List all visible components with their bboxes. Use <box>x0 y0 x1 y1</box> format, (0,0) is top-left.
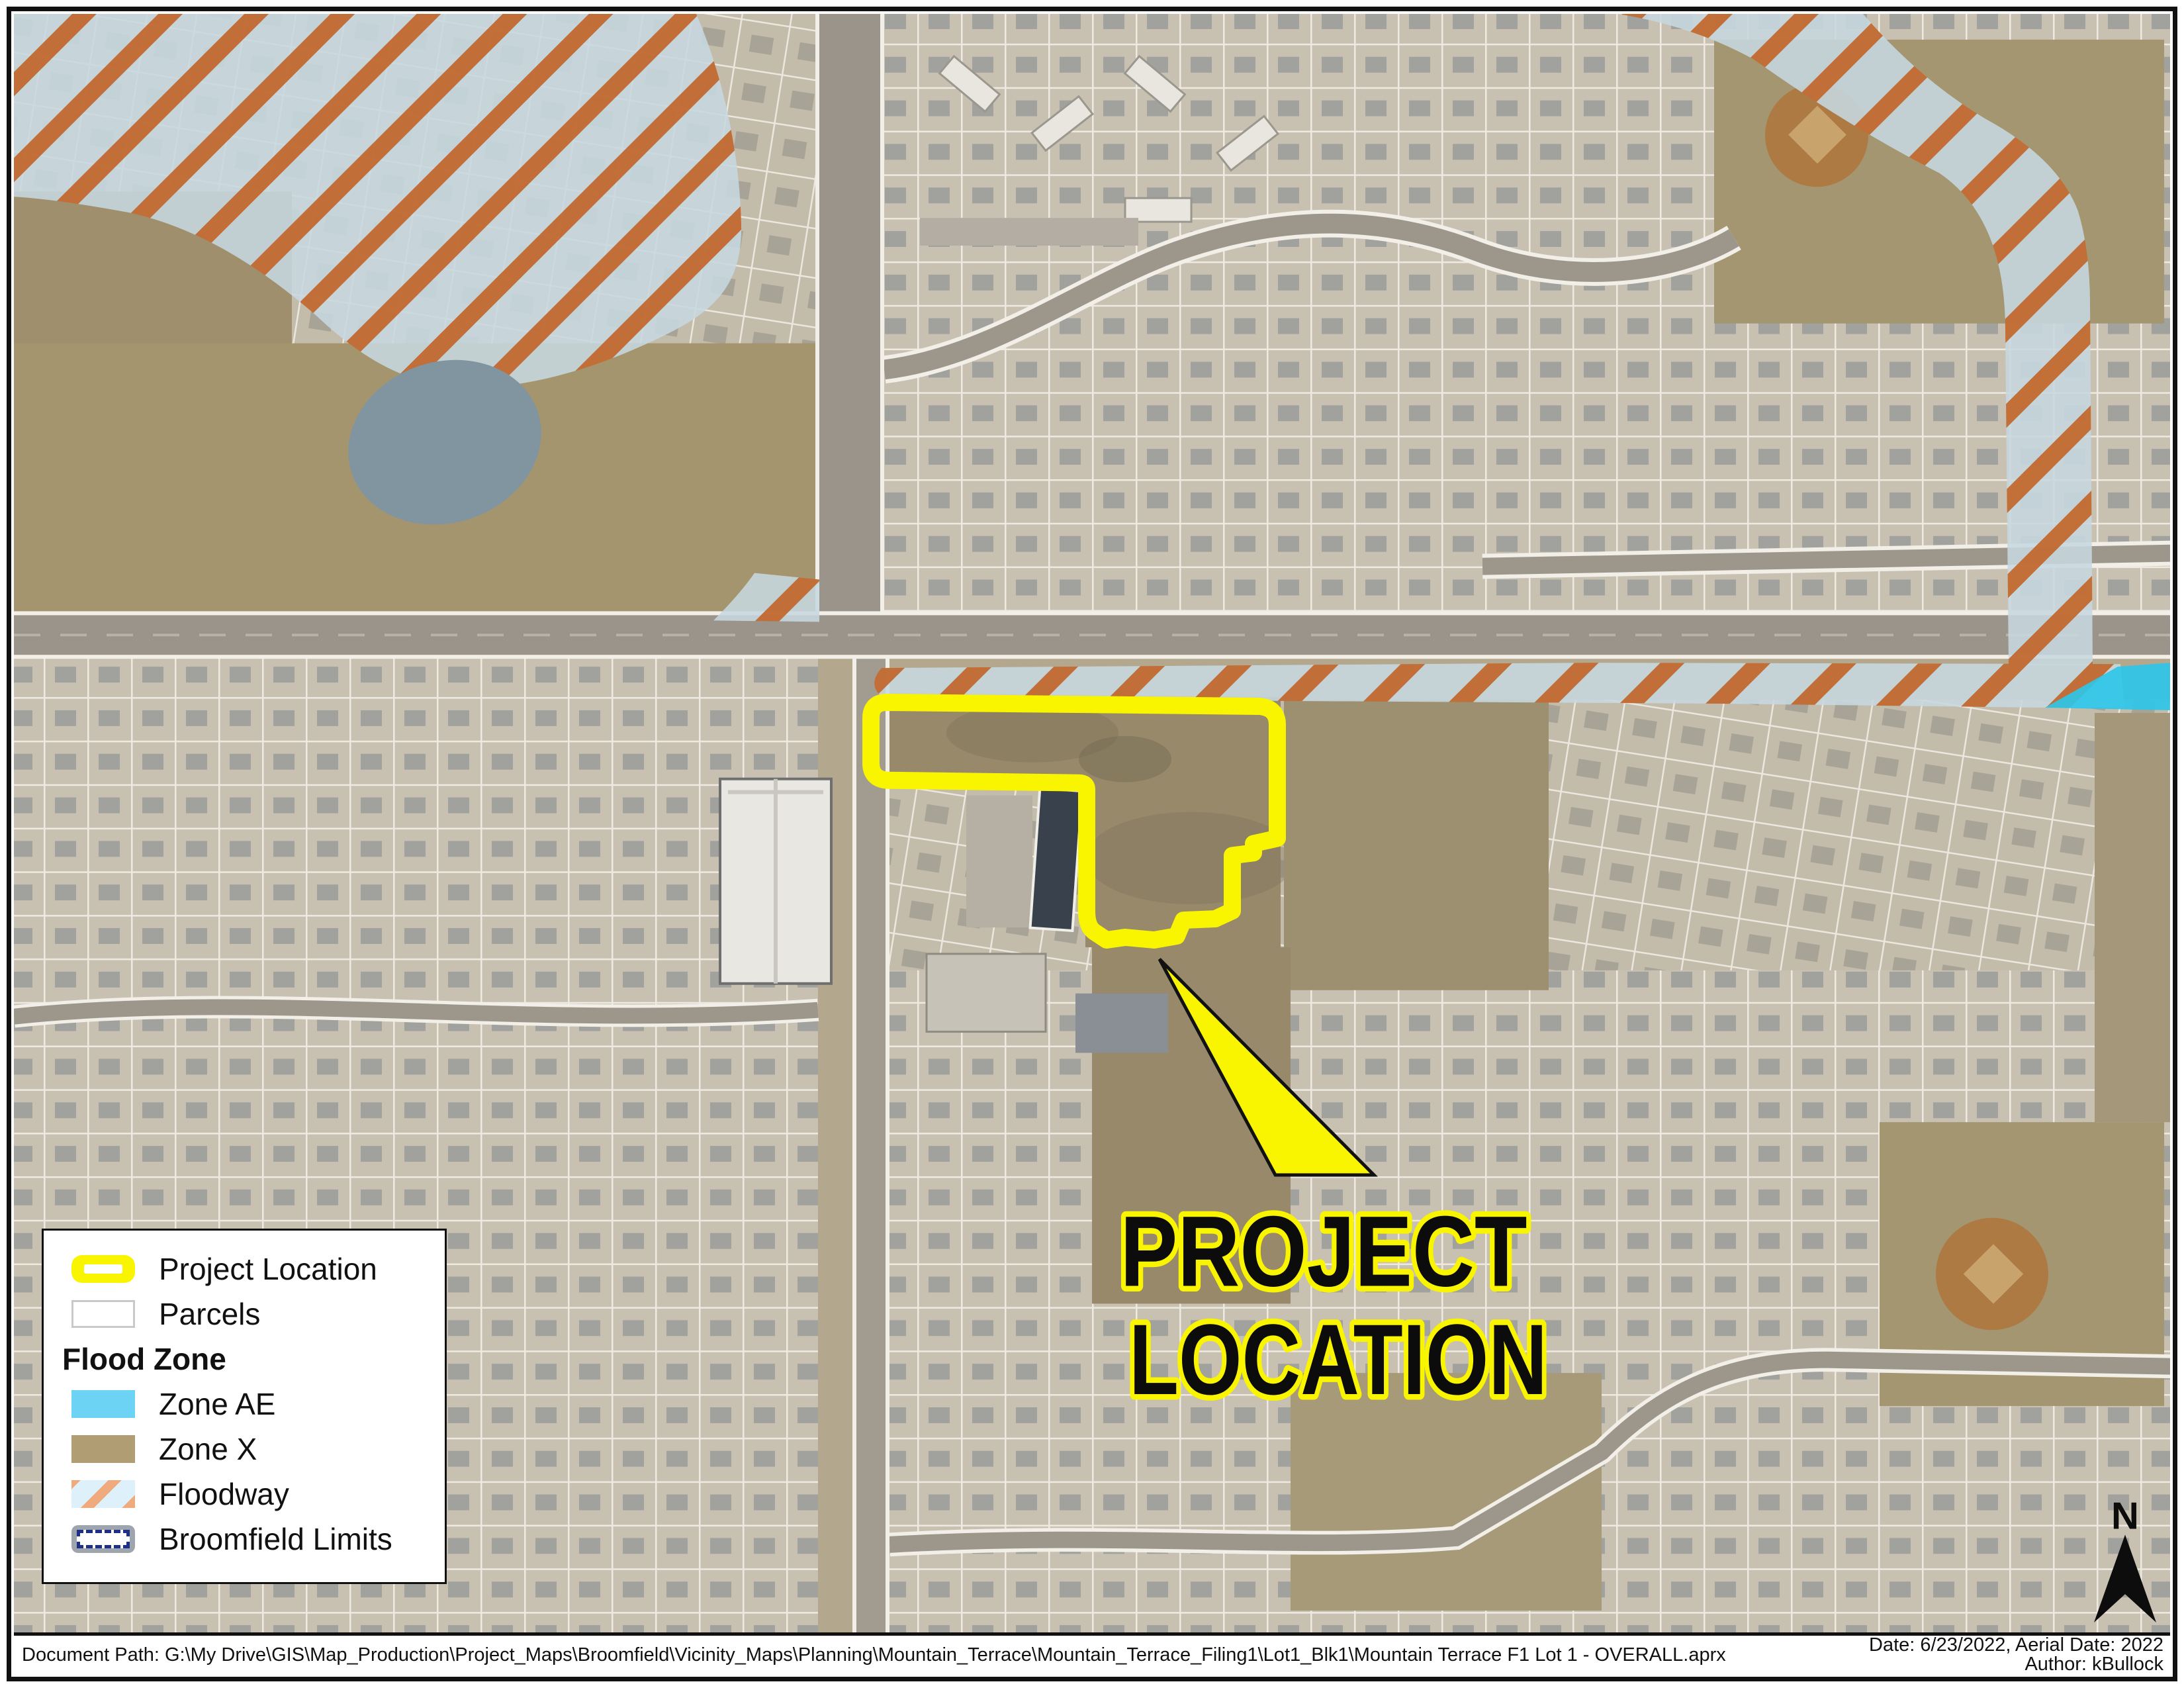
project-location-label-line2: LOCATION <box>1129 1304 1547 1416</box>
legend: Project Location Parcels Flood Zone Zone… <box>42 1229 447 1584</box>
aerial-map: PROJECT LOCATION N Project Location Parc… <box>14 14 2170 1632</box>
document-path: Document Path: G:\My Drive\GIS\Map_Produ… <box>14 1644 1726 1666</box>
footer-bar: Document Path: G:\My Drive\GIS\Map_Produ… <box>14 1632 2170 1674</box>
project-location-symbol <box>71 1255 135 1283</box>
legend-label: Project Location <box>159 1251 377 1287</box>
legend-item-zone-x: Zone X <box>44 1427 445 1472</box>
author-text: Author: kBullock <box>1869 1655 2163 1674</box>
park-north <box>1714 40 2164 324</box>
legend-section-header: Flood Zone <box>62 1341 226 1377</box>
floodway-swatch <box>71 1480 135 1508</box>
date-text: Date: 6/23/2022, Aerial Date: 2022 <box>1869 1636 2163 1655</box>
parcels-symbol <box>71 1300 135 1328</box>
date-author-block: Date: 6/23/2022, Aerial Date: 2022 Autho… <box>1869 1636 2170 1674</box>
legend-label: Parcels <box>159 1296 260 1332</box>
legend-section-flood-zone: Flood Zone <box>44 1336 445 1382</box>
legend-item-floodway: Floodway <box>44 1472 445 1517</box>
zone-ae-swatch <box>71 1390 135 1418</box>
legend-label: Zone X <box>159 1431 257 1467</box>
legend-label: Broomfield Limits <box>159 1521 392 1557</box>
legend-item-parcels: Parcels <box>44 1291 445 1336</box>
project-location-label-line1: PROJECT <box>1120 1196 1527 1308</box>
map-sheet: PROJECT LOCATION N Project Location Parc… <box>0 0 2184 1688</box>
office-building <box>1030 788 1083 931</box>
zone-x-swatch <box>71 1435 135 1463</box>
legend-item-zone-ae: Zone AE <box>44 1382 445 1427</box>
legend-label: Floodway <box>159 1476 289 1512</box>
legend-item-broomfield-limits: Broomfield Limits <box>44 1517 445 1562</box>
map-frame: PROJECT LOCATION N Project Location Parc… <box>7 7 2177 1681</box>
legend-label: Zone AE <box>159 1386 275 1422</box>
north-label: N <box>2111 1495 2139 1538</box>
broomfield-limits-symbol <box>71 1525 135 1553</box>
legend-item-project-location: Project Location <box>44 1246 445 1291</box>
